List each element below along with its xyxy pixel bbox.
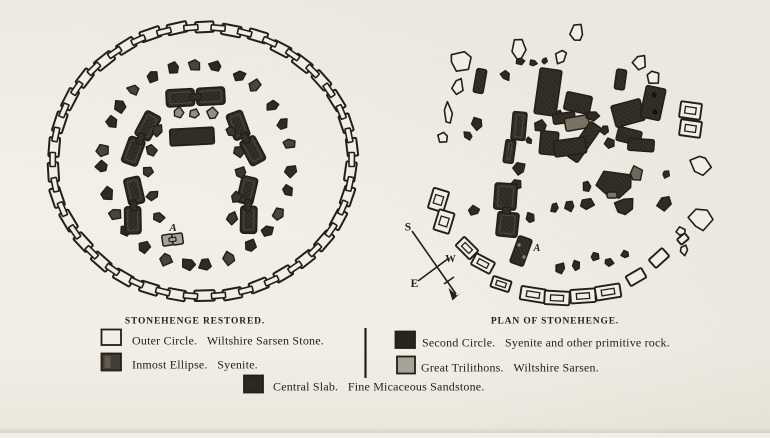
svg-text:Second Circle. Syenite and o: Second Circle. Syenite and other primiti… [422,336,670,350]
svg-text:Great Trilithons. Wiltshire: Great Trilithons. Wiltshire Sarsen. [421,361,599,375]
svg-text:Inmost Ellipse. Syenite.: Inmost Ellipse. Syenite. [132,358,258,372]
svg-text:A: A [168,222,176,234]
svg-text:Central Slab. Fine Micaceous: Central Slab. Fine Micaceous Sandstone. [273,380,485,394]
svg-text:W: W [445,254,456,265]
svg-text:S: S [405,222,411,234]
svg-text:E: E [411,278,419,290]
svg-text:PLAN OF STONEHENGE.: PLAN OF STONEHENGE. [491,317,619,327]
svg-text:STONEHENGE RESTORED.: STONEHENGE RESTORED. [125,317,265,327]
svg-text:A: A [533,243,541,254]
svg-text:Outer Circle. Wiltshire Sars: Outer Circle. Wiltshire Sarsen Stone. [132,334,324,348]
